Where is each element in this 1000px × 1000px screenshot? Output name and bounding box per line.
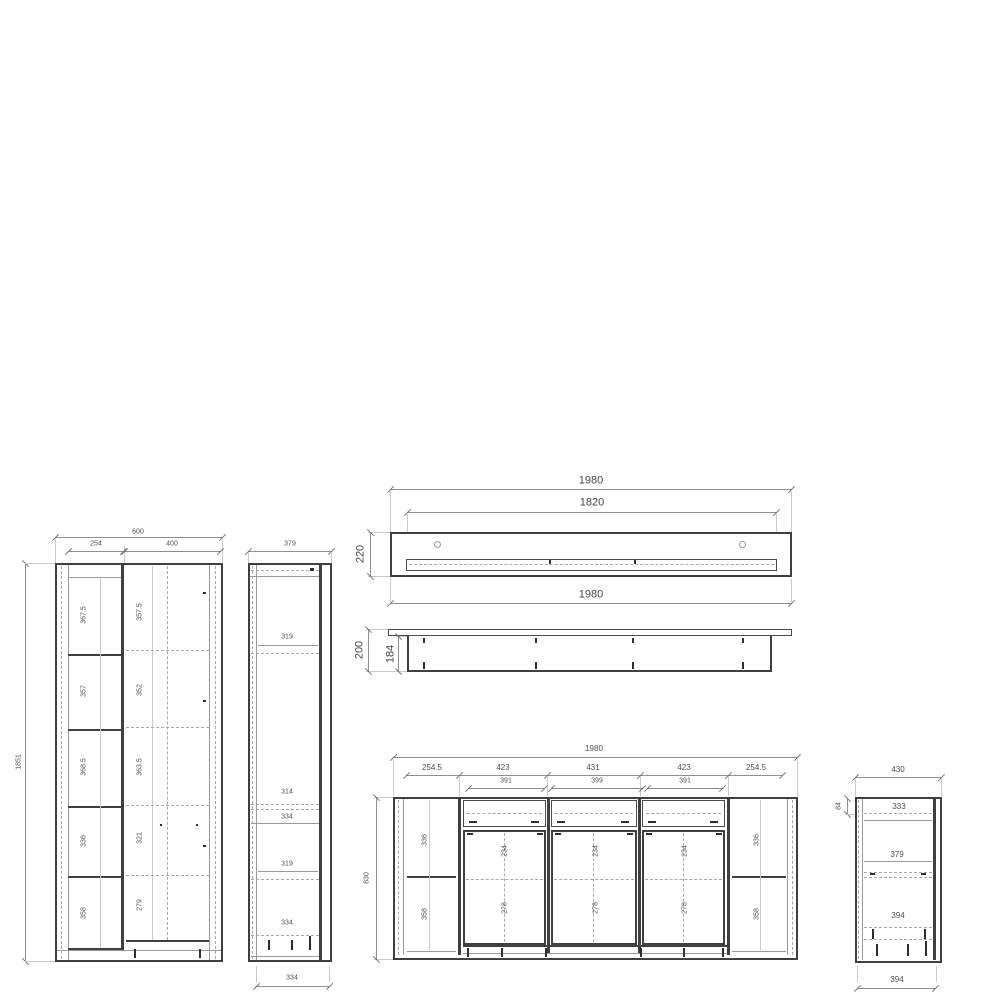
hidden-shelf-line (126, 727, 209, 728)
section-dim-label: 334 (281, 920, 293, 927)
plinth-line (463, 945, 727, 947)
extension-line (797, 759, 798, 796)
section-dim-label: 278 (502, 902, 509, 914)
extension-line (393, 759, 394, 796)
shelf-line (732, 876, 786, 878)
shelf-line (68, 876, 121, 878)
dim-label-width-top: 430 (891, 766, 904, 774)
segment-dim-label: 254.5 (422, 764, 442, 772)
back-panel-line (256, 565, 257, 960)
top-panel-line (68, 577, 121, 578)
hidden-edge-line (467, 813, 542, 814)
section-dim-label: 367.5 (81, 606, 88, 624)
segment-dim-label: 391 (679, 778, 691, 785)
hinge-mark (203, 845, 206, 847)
shelf-line (251, 823, 319, 824)
extension-line (390, 579, 391, 602)
divider-line (638, 799, 641, 953)
section-dim-label: 334 (281, 814, 293, 821)
dim-label-depth-total: 200 (355, 641, 366, 659)
fitting-dot (160, 824, 162, 826)
hidden-shelf-line (466, 879, 543, 880)
top-plank (388, 629, 792, 636)
hidden-edge-line (864, 939, 932, 940)
dim-label-width-left: 254 (90, 541, 102, 548)
dim-label-width-right: 400 (166, 541, 178, 548)
side-panel-line (68, 565, 69, 960)
dimension-line (468, 788, 545, 789)
hidden-shelf-line (554, 879, 634, 880)
inner-dim-line (258, 871, 318, 872)
section-dim-label: 333 (892, 803, 905, 811)
door-centerline (167, 566, 168, 940)
section-dim-label: 234 (502, 845, 509, 857)
extension-line (640, 777, 641, 796)
section-dim-label: 314 (281, 789, 293, 796)
section-dim-label: 336 (422, 834, 429, 846)
hinge-mark (203, 700, 206, 702)
dimension-line (376, 797, 377, 960)
extension-line (760, 800, 761, 950)
dim-label-top-inset: 84 (836, 802, 843, 810)
hinge-mark (203, 592, 206, 594)
handle-mark (537, 833, 543, 835)
section-dim-label: 363.5 (137, 758, 144, 776)
foot-mark (925, 941, 927, 956)
handle-mark (557, 821, 565, 823)
dimension-line (855, 777, 942, 778)
section-dim-label: 278 (593, 902, 600, 914)
foot-mark (501, 948, 503, 957)
dim-label-width-bottom: 334 (286, 975, 298, 982)
section-dim-label: 319 (281, 634, 293, 641)
dimension-line (390, 603, 792, 604)
dim-label-width-inner: 1820 (580, 498, 604, 509)
foot-mark (640, 948, 642, 957)
section-dim-label: 321 (137, 832, 144, 844)
extension-line (857, 966, 858, 982)
section-dim-label: 319 (281, 861, 293, 868)
dim-label-depth-inner: 184 (386, 645, 397, 663)
segment-dim-label: 391 (500, 778, 512, 785)
fitting-mark (423, 638, 425, 643)
handle-mark (710, 821, 718, 823)
drawer-top-line (126, 940, 209, 942)
divider-line (727, 799, 730, 955)
dimension-line (647, 788, 723, 789)
section-dim-label: 358 (754, 908, 761, 920)
extension-line (429, 800, 430, 950)
handle-mark (469, 821, 477, 823)
foot-mark (291, 940, 293, 950)
shelf-line (864, 861, 932, 862)
handle-mark (621, 821, 629, 823)
section-dim-label: 357.5 (137, 603, 144, 621)
section-dim-label: 336 (81, 835, 88, 847)
segment-dim-label: 431 (586, 764, 599, 772)
hidden-edge-line (646, 813, 721, 814)
section-dim-label: 234 (682, 845, 689, 857)
panel-hatch-line (215, 566, 216, 959)
fitting-mark (870, 873, 875, 875)
shelf-line (68, 654, 121, 656)
fitting-mark (742, 662, 744, 669)
hidden-shelf-line (251, 879, 319, 880)
handle-mark (467, 833, 473, 835)
dimension-line (393, 757, 798, 758)
fitting-mark (921, 873, 926, 875)
foot-mark (467, 948, 469, 957)
furniture-technical-drawing: 600 254 400 1851 367.5 357 368.5 336 358 (0, 0, 1000, 1000)
foot-mark (545, 948, 547, 957)
dimension-line (370, 532, 371, 577)
plinth-line (251, 956, 319, 957)
shelf-line (68, 729, 121, 731)
segment-dim-label: 423 (677, 764, 690, 772)
extension-line (776, 514, 777, 532)
extension-line (55, 539, 56, 563)
hidden-edge-line (555, 813, 633, 814)
extension-line (845, 814, 855, 815)
dim-label-height: 220 (356, 545, 367, 563)
foot-mark (683, 948, 685, 957)
section-dim-label: 394 (891, 912, 904, 920)
fitting-circle (739, 541, 746, 548)
dimension-line (390, 489, 792, 490)
hidden-edge-line (864, 813, 932, 814)
shelf-line (407, 876, 456, 878)
hidden-shelf-line (126, 650, 209, 651)
segment-dim-label: 254.5 (746, 764, 766, 772)
section-dim-label: 368.5 (81, 758, 88, 776)
shelf-board (406, 559, 777, 571)
extension-line (25, 563, 55, 564)
hidden-edge-line (864, 927, 932, 928)
center-divider (121, 565, 124, 950)
dimension-line (25, 563, 26, 962)
hidden-edge-line (864, 877, 932, 878)
section-dim-label: 234 (593, 845, 600, 857)
channel-side-line (770, 636, 772, 672)
dimension-line (248, 551, 332, 552)
dimension-line (857, 988, 936, 989)
hidden-shelf-line (251, 653, 319, 654)
extension-line (152, 566, 153, 940)
fitting-mark (535, 662, 537, 669)
inner-dim-line (258, 645, 318, 646)
panel-hatch-line (858, 800, 859, 959)
divider-line (547, 799, 550, 953)
foot-mark (907, 944, 909, 956)
fitting-mark (310, 568, 314, 571)
dim-label-width-total: 600 (132, 529, 144, 536)
shelf-line (864, 820, 932, 821)
dimension-line (847, 798, 848, 815)
section-dim-label: 379 (890, 851, 903, 859)
hidden-shelf-line (126, 875, 209, 876)
extension-line (331, 553, 332, 563)
side-panel-line (403, 799, 404, 955)
section-dim-label: 278 (682, 902, 689, 914)
extension-line (459, 777, 460, 796)
shelf-line (732, 951, 786, 952)
fitting-mark (549, 560, 551, 564)
hidden-edge-line (409, 564, 774, 565)
foot-mark (876, 944, 878, 956)
segment-dim-label: 399 (591, 778, 603, 785)
hidden-shelf-line (126, 805, 209, 806)
divider-line (458, 799, 461, 955)
section-dim-label: 357 (81, 685, 88, 697)
handle-mark (627, 833, 633, 835)
foot-mark (872, 929, 874, 939)
extension-line (256, 966, 257, 982)
fitting-mark (535, 638, 537, 643)
panel-hatch-line (61, 566, 62, 959)
fitting-mark (634, 560, 636, 564)
extension-line (855, 779, 856, 796)
hidden-shelf-line (251, 809, 319, 810)
extension-line (25, 961, 55, 962)
dimension-line (55, 537, 223, 538)
fitting-mark (632, 638, 634, 643)
hidden-shelf-line (645, 879, 722, 880)
foot-mark (722, 948, 724, 957)
shelf-line (407, 951, 456, 952)
section-dim-label: 279 (137, 899, 144, 911)
dimension-line (398, 636, 399, 672)
hidden-edge-line (251, 570, 319, 571)
handle-mark (646, 833, 652, 835)
dim-label-width-total-top: 1980 (579, 476, 603, 487)
foot-mark (199, 949, 201, 958)
dim-label-height-total: 1851 (16, 754, 23, 770)
handle-mark (531, 821, 539, 823)
extension-line (941, 779, 942, 796)
fitting-circle (434, 541, 441, 548)
dim-label-width-top: 379 (284, 541, 296, 548)
section-dim-label: 336 (754, 834, 761, 846)
plinth-line (57, 950, 221, 951)
dim-label-width-bottom: 394 (890, 976, 903, 984)
handle-mark (555, 833, 561, 835)
shelf-line (68, 806, 121, 808)
side-panel-line (787, 799, 788, 955)
extension-line (791, 491, 792, 532)
foot-mark (268, 940, 270, 950)
fitting-dot (196, 824, 198, 826)
front-edge-line (319, 565, 322, 960)
extension-line (366, 671, 407, 672)
extension-line (791, 579, 792, 602)
channel-bottom-line (407, 670, 772, 672)
dimension-line (407, 512, 777, 513)
front-edge-line (933, 799, 936, 960)
dimension-line (551, 788, 643, 789)
dim-label-width-total-bottom: 1980 (579, 590, 603, 601)
foot-mark (134, 949, 136, 958)
hidden-shelf-line (251, 804, 319, 805)
back-panel-line (862, 799, 863, 960)
section-dim-label: 352 (137, 684, 144, 696)
extension-line (936, 966, 937, 982)
dim-label-height-total: 830 (364, 872, 371, 884)
extension-line (222, 539, 223, 563)
handle-mark (648, 821, 656, 823)
extension-line (100, 578, 101, 948)
fitting-mark (423, 662, 425, 669)
fitting-mark (742, 638, 744, 643)
handle-mark (716, 833, 722, 835)
channel-side-line (407, 636, 409, 672)
dimension-line (68, 551, 124, 552)
extension-line (248, 553, 249, 563)
segment-dim-label: 423 (496, 764, 509, 772)
top-panel-line (250, 576, 319, 577)
extension-line (407, 514, 408, 532)
foot-mark (309, 936, 311, 950)
panel-hatch-line (252, 566, 253, 959)
panel-hatch-line (398, 800, 399, 955)
fitting-mark (632, 662, 634, 669)
section-dim-label: 358 (81, 907, 88, 919)
extension-line (390, 491, 391, 532)
section-dim-label: 358 (422, 908, 429, 920)
dimension-line (256, 986, 330, 987)
panel-hatch-line (792, 800, 793, 955)
extension-line (728, 777, 729, 796)
foot-mark (924, 929, 926, 939)
dimension-line (124, 551, 221, 552)
extension-line (329, 966, 330, 982)
side-panel-line (209, 565, 210, 960)
dim-label-width-total: 1980 (585, 745, 603, 753)
dimension-line (368, 629, 369, 672)
